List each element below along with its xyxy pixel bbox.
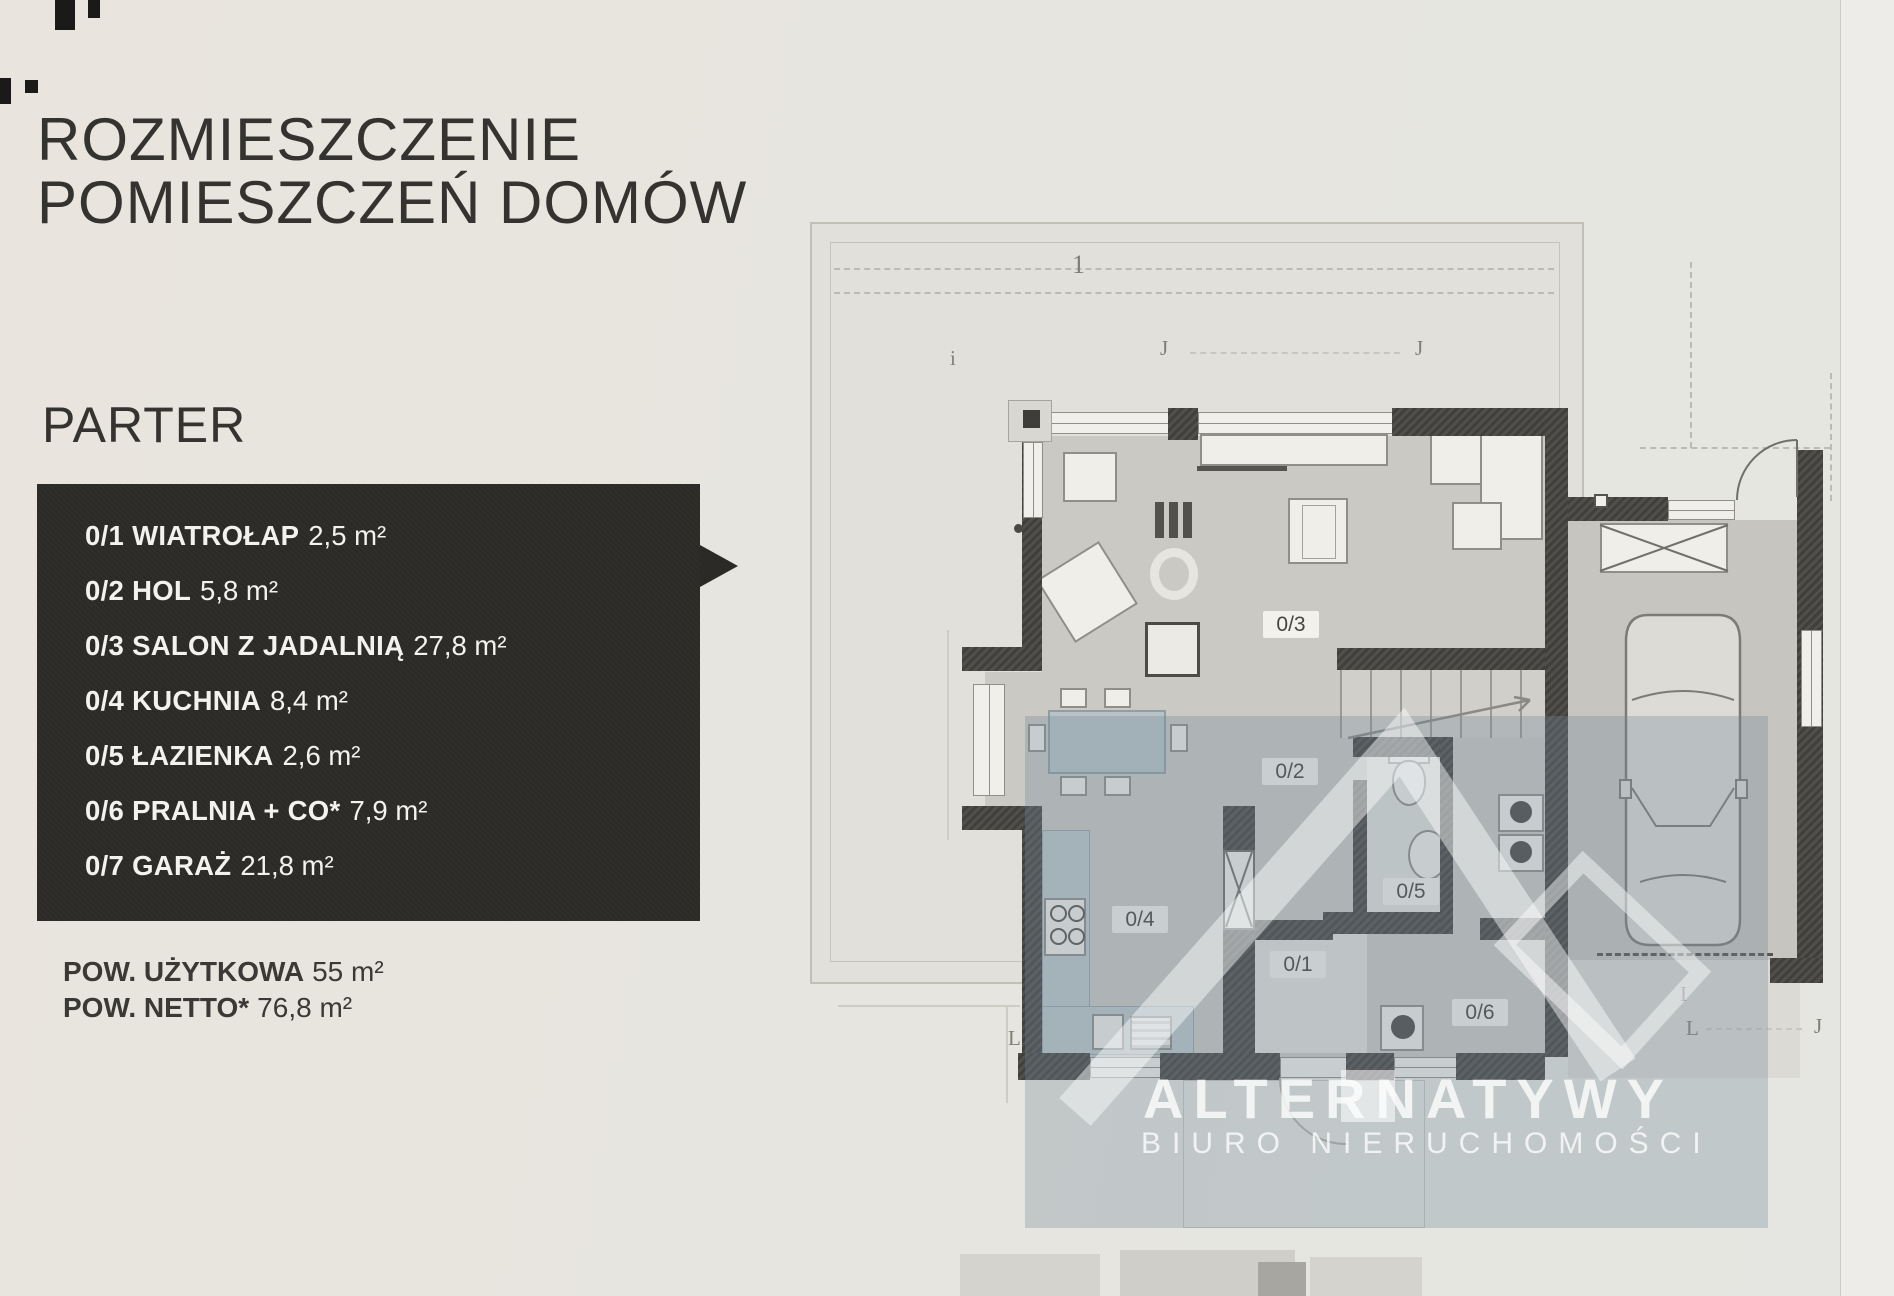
wall-marker — [1594, 494, 1608, 508]
axis-mark: L — [1008, 1026, 1021, 1051]
axis-mark: J — [1160, 336, 1168, 361]
roof-ridge-dashed-line — [834, 268, 1554, 270]
terrace-edge-line — [838, 1005, 1020, 1007]
brochure-page: ROZMIESZCZENIE POMIESZCZEŃ DOMÓW PARTER … — [0, 0, 1894, 1296]
chair — [1060, 688, 1087, 708]
side-table — [1452, 502, 1502, 550]
axis-mark: J — [1814, 1014, 1822, 1039]
driveway-dashed-line — [1830, 373, 1832, 501]
garage-wall — [1770, 958, 1823, 983]
scan-artifact — [25, 80, 38, 93]
scan-artifact — [88, 0, 100, 18]
cutoff-drawing-fragment — [1310, 1257, 1422, 1296]
wall — [1392, 408, 1568, 436]
page-edge — [1840, 0, 1894, 1296]
axis-mark: 1 — [1072, 250, 1085, 280]
driveway-dashed-line — [1690, 262, 1692, 448]
watermark-brand: ALTERNATYWY — [1143, 1066, 1703, 1131]
wall — [962, 647, 1042, 671]
window — [1198, 412, 1394, 434]
pouf-table — [1145, 622, 1200, 677]
radiator-bar — [1183, 502, 1192, 538]
terrace-edge-line — [947, 630, 949, 840]
driveway-dashed-line — [1640, 447, 1830, 449]
garage-wall — [1568, 497, 1668, 521]
garage-door-arc — [1737, 440, 1797, 500]
small-table — [1063, 452, 1117, 502]
scan-artifact — [0, 78, 11, 104]
radiator-bar — [1169, 502, 1178, 538]
chimney-flue — [1023, 410, 1040, 428]
window — [1023, 442, 1043, 518]
scan-artifact — [55, 0, 75, 30]
floor-ring-decor — [1150, 548, 1198, 600]
cutoff-drawing-fragment — [1258, 1262, 1306, 1296]
axis-mark: J — [1415, 336, 1423, 361]
bay-window — [973, 684, 1005, 796]
room-label-0-3: 0/3 — [1263, 611, 1319, 638]
sideboard — [1200, 434, 1388, 466]
watermark-subtitle: BIURO NIERUCHOMOŚCI — [1141, 1127, 1711, 1161]
chair — [1104, 688, 1131, 708]
garage-window — [1801, 630, 1822, 727]
wall — [1168, 408, 1198, 440]
roof-ridge-dashed-line — [834, 292, 1554, 294]
radiator-bar — [1155, 502, 1164, 538]
axis-mark: i — [950, 346, 956, 371]
cutoff-drawing-fragment — [960, 1254, 1100, 1296]
coffee-table-inner — [1302, 505, 1336, 559]
axis-dashed-line — [1190, 352, 1400, 354]
tv-line — [1197, 466, 1287, 471]
garage-storage — [1600, 523, 1728, 573]
terrace-edge-line — [1006, 1005, 1008, 1103]
window — [1050, 412, 1170, 434]
wall-marker — [1014, 524, 1023, 533]
garage-window — [1668, 500, 1735, 520]
salon-stairs-wall — [1337, 648, 1545, 670]
